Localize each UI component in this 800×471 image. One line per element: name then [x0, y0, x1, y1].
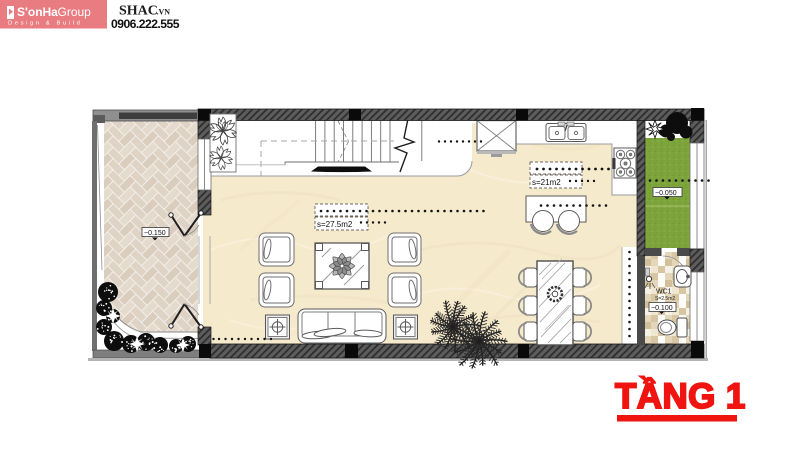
svg-text:Design & Build: Design & Build: [8, 21, 82, 27]
svg-text:.VN: .VN: [157, 8, 171, 17]
svg-text:Group: Group: [58, 5, 92, 19]
svg-text:S=2.5m2: S=2.5m2: [655, 296, 675, 302]
svg-text:−0.050: −0.050: [655, 190, 677, 197]
svg-text:−0.150: −0.150: [144, 230, 166, 237]
svg-text:S'onHa: S'onHa: [17, 5, 58, 19]
svg-text:−0.100: −0.100: [651, 305, 673, 312]
svg-text:WC1: WC1: [656, 289, 672, 296]
svg-text:s=21m2: s=21m2: [532, 178, 561, 187]
svg-text:s=27.5m2: s=27.5m2: [317, 220, 353, 229]
svg-text:0906.222.555: 0906.222.555: [111, 17, 180, 31]
svg-text:TẦNG 1: TẦNG 1: [615, 376, 746, 416]
